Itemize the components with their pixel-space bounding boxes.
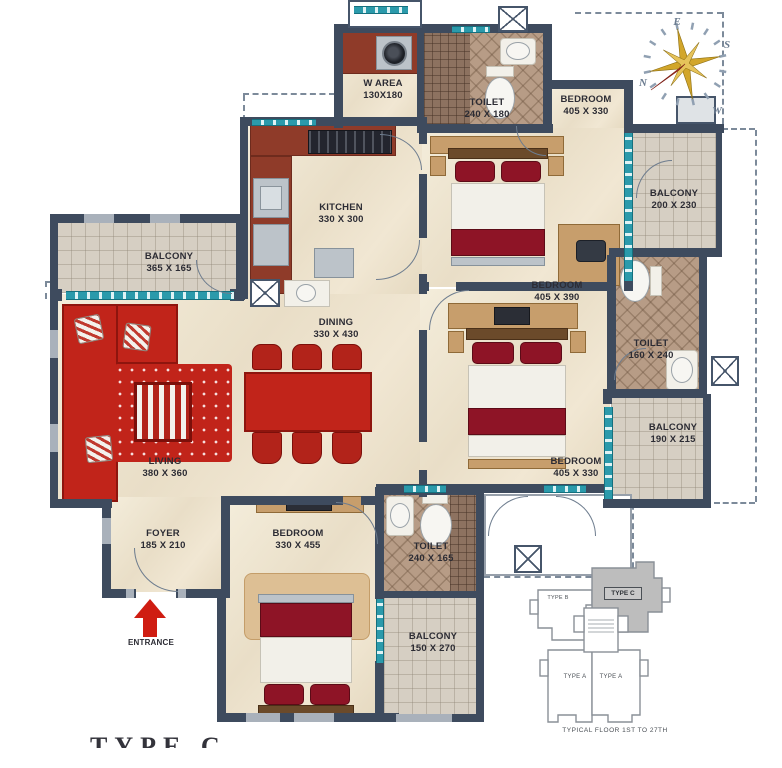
plan-title-clipped: TYPE C: [90, 734, 260, 748]
entrance-arrow-stem: [143, 617, 157, 637]
kitchen-hob: [253, 224, 289, 266]
room-label-bedroom-mid: BEDROOM405 X 390: [531, 280, 582, 305]
wall: [549, 80, 633, 89]
bed-footboard: [258, 594, 354, 603]
room-name: BEDROOM: [531, 280, 582, 292]
duct-x: [250, 279, 280, 307]
room-label-balcony-topright: BALCONY200 X 230: [650, 188, 698, 213]
window: [624, 133, 633, 281]
bed-pillow: [520, 342, 562, 364]
window-sill: [50, 424, 58, 452]
tv-unit: [494, 307, 530, 325]
coffee-table: [134, 382, 192, 442]
wall: [703, 394, 711, 506]
bed-footboard: [451, 257, 545, 266]
wash-basin: [296, 284, 316, 302]
room-name: BALCONY: [145, 251, 193, 263]
duct-x: [711, 356, 739, 386]
keyplan-label-type-b: TYPE B: [547, 595, 568, 601]
toilet-bowl: [420, 504, 452, 546]
wall: [361, 496, 378, 505]
wall: [419, 282, 429, 291]
bed-blanket: [260, 603, 352, 637]
keyplan-text: TYPE A: [600, 674, 623, 680]
window-sill: [294, 713, 334, 722]
window-sill: [150, 214, 180, 223]
room-label-toilet-top: TOILET240 X 180: [464, 97, 509, 122]
room-name: BALCONY: [409, 631, 457, 643]
bed-duvet: [468, 365, 566, 409]
room-dims: 330 X 430: [313, 329, 358, 341]
room-name: DINING: [313, 317, 358, 329]
wall: [236, 214, 245, 300]
dashed-line: [243, 93, 335, 95]
keyplan-caption: TYPICAL FLOOR 1ST TO 27TH: [562, 727, 667, 734]
window-sill: [50, 330, 58, 358]
bed-pillow: [310, 684, 350, 705]
dashed-line: [714, 502, 755, 504]
window-sill: [102, 518, 111, 544]
wall: [624, 281, 633, 291]
room-label-balcony-bottom: BALCONY150 X 270: [409, 631, 457, 656]
window: [354, 6, 408, 14]
room-dims: 185 X 210: [140, 540, 185, 552]
room-name: BALCONY: [649, 422, 697, 434]
window: [404, 485, 446, 493]
room-dims: 365 X 165: [145, 263, 193, 275]
bed-pillow: [264, 684, 304, 705]
room-label-bedroom-bottom: BEDROOM330 X 455: [272, 528, 323, 553]
room-label-living: LIVING380 X 360: [142, 456, 187, 481]
room-name: W AREA: [363, 78, 402, 90]
wall: [102, 499, 111, 598]
keyplan-balcony-stub: [662, 588, 670, 602]
keyplan-balcony-stub: [540, 660, 548, 676]
window: [66, 291, 234, 300]
side-table: [570, 331, 586, 353]
floor-plan: W AREA130X180 TOILET240 X 180 BEDROOM405…: [0, 0, 782, 768]
room-dims: 405 X 330: [550, 468, 601, 480]
dashed-line: [45, 281, 47, 299]
bed-duvet: [451, 183, 545, 230]
keyplan-label-type-a-left: TYPE A: [564, 674, 587, 680]
key-plan: [528, 560, 738, 732]
keyplan-label-type-c: TYPE C: [604, 587, 642, 600]
toilet-tank: [486, 66, 514, 77]
room-name: TOILET: [408, 541, 453, 553]
room-dims: 130X180: [363, 90, 402, 102]
keyplan-text: TYPE C: [611, 590, 634, 597]
wall: [417, 28, 424, 128]
bed-foot-sheet: [468, 435, 566, 457]
dining-chair: [332, 432, 362, 464]
room-label-balcony-left: BALCONY365 X 165: [145, 251, 193, 276]
floor-shower-top: [424, 32, 470, 124]
dining-table: [244, 372, 372, 432]
bed-duvet: [260, 637, 352, 683]
room-dims: 190 X 215: [649, 434, 697, 446]
keyplan-balcony-stub: [640, 660, 648, 676]
entrance-text: ENTRANCE: [128, 638, 174, 648]
floor-balcony-right: [611, 397, 706, 502]
compass-letter-w: W: [712, 105, 723, 117]
dining-chair: [252, 432, 282, 464]
desk-chair: [576, 240, 606, 262]
duct-x: [498, 6, 528, 32]
room-dims: 405 X 390: [531, 292, 582, 304]
wall: [624, 124, 724, 133]
room-dims: 240 X 165: [408, 553, 453, 565]
compass-rose: E S N W: [633, 12, 745, 120]
floor-shower-bottom: [450, 494, 478, 593]
sofa-pillow: [74, 314, 105, 345]
wall: [543, 24, 552, 128]
bed-blanket: [468, 408, 566, 435]
sofa-pillow: [85, 435, 114, 464]
dashed-line: [755, 130, 757, 502]
room-dims: 330 X 300: [318, 214, 363, 226]
sofa-pillow: [122, 322, 151, 351]
wall: [603, 394, 612, 404]
window-sill: [396, 714, 452, 722]
side-table: [430, 156, 446, 176]
toilet-tank: [650, 266, 662, 296]
wall: [217, 595, 226, 722]
keyplan-unit-type-a-right: [592, 650, 640, 722]
room-dims: 330 X 455: [272, 540, 323, 552]
room-dims: 160 X 240: [628, 350, 673, 362]
keyplan-balcony-stub: [530, 600, 538, 614]
wall: [221, 496, 230, 598]
bed-pillow: [501, 161, 541, 182]
entrance-label: ENTRANCE: [128, 638, 174, 648]
keyplan-core-cell: [574, 616, 584, 632]
wall: [419, 174, 427, 238]
window-sill: [246, 713, 280, 722]
wall: [603, 389, 707, 398]
side-table: [548, 156, 564, 176]
dining-chair: [292, 432, 322, 464]
room-label-foyer: FOYER185 X 210: [140, 528, 185, 553]
wall: [419, 330, 427, 442]
window: [376, 599, 384, 663]
window: [252, 119, 316, 126]
compass-letter-n: N: [638, 77, 648, 89]
room-name: TOILET: [628, 338, 673, 350]
bed-pillow: [472, 342, 514, 364]
dining-chair: [252, 344, 282, 370]
wall: [50, 214, 246, 223]
keyplan-core-cell: [618, 616, 628, 632]
wall: [716, 131, 722, 252]
room-name: FOYER: [140, 528, 185, 540]
bed-pillow: [455, 161, 495, 182]
room-name: BALCONY: [650, 188, 698, 200]
window: [544, 485, 586, 493]
wall: [334, 24, 343, 128]
basin-bowl: [671, 357, 693, 383]
room-name: BEDROOM: [560, 94, 611, 106]
wall: [476, 591, 484, 722]
keyplan-text: TYPE B: [547, 595, 568, 601]
entrance-arrow-head: [134, 599, 166, 618]
room-dims: 405 X 330: [560, 106, 611, 118]
room-dims: 240 X 180: [464, 109, 509, 121]
wall: [699, 252, 707, 392]
compass-letter-e: E: [672, 16, 680, 28]
keyplan-text: TYPE A: [564, 674, 587, 680]
keyplan-caption-text: TYPICAL FLOOR 1ST TO 27TH: [562, 727, 667, 734]
room-label-kitchen: KITCHEN330 X 300: [318, 202, 363, 227]
keyplan-core: [584, 608, 618, 652]
window: [452, 26, 490, 33]
room-dims: 380 X 360: [142, 468, 187, 480]
room-name: BEDROOM: [272, 528, 323, 540]
room-label-toilet-right: TOILET160 X 240: [628, 338, 673, 363]
dining-chair: [332, 344, 362, 370]
room-name: KITCHEN: [318, 202, 363, 214]
room-label-balcony-right: BALCONY190 X 215: [649, 422, 697, 447]
basin-bowl: [390, 503, 410, 528]
bed-blanket: [451, 229, 545, 256]
wall: [375, 661, 384, 722]
plan-title-text: TYPE C: [90, 734, 227, 748]
floor-balcony-bottom: [384, 597, 478, 717]
room-label-bedroom-top: BEDROOM405 X 330: [560, 94, 611, 119]
wall: [50, 289, 62, 301]
door-jamb: [126, 589, 134, 598]
dining-chair: [292, 344, 322, 370]
room-label-bedroom-right: BEDROOM405 X 330: [550, 456, 601, 481]
dashed-line: [722, 128, 755, 130]
window-sill: [84, 214, 114, 223]
keyplan-unit-type-a-left: [548, 650, 592, 722]
room-label-toilet-bottom: TOILET240 X 165: [408, 541, 453, 566]
vent-box: [348, 0, 422, 28]
room-dims: 200 X 230: [650, 200, 698, 212]
room-label-warea: W AREA130X180: [363, 78, 402, 103]
room-name: LIVING: [142, 456, 187, 468]
room-label-dining: DINING330 X 430: [313, 317, 358, 342]
wall: [50, 294, 58, 507]
door-jamb: [178, 589, 186, 598]
wall: [221, 496, 343, 505]
room-dims: 150 X 270: [409, 643, 457, 655]
room-name: TOILET: [464, 97, 509, 109]
bed-headboard: [466, 328, 568, 340]
window: [604, 407, 613, 499]
keyplan-label-type-a-right: TYPE A: [600, 674, 623, 680]
wall: [603, 499, 711, 508]
compass-letter-s: S: [724, 39, 730, 51]
room-name: BEDROOM: [550, 456, 601, 468]
side-table: [448, 331, 464, 353]
kitchen-sink-basin: [260, 186, 282, 210]
wall: [476, 487, 484, 599]
wall: [382, 591, 479, 598]
basin-bowl: [506, 42, 530, 60]
refrigerator: [314, 248, 354, 278]
washing-machine-drum: [382, 41, 407, 66]
